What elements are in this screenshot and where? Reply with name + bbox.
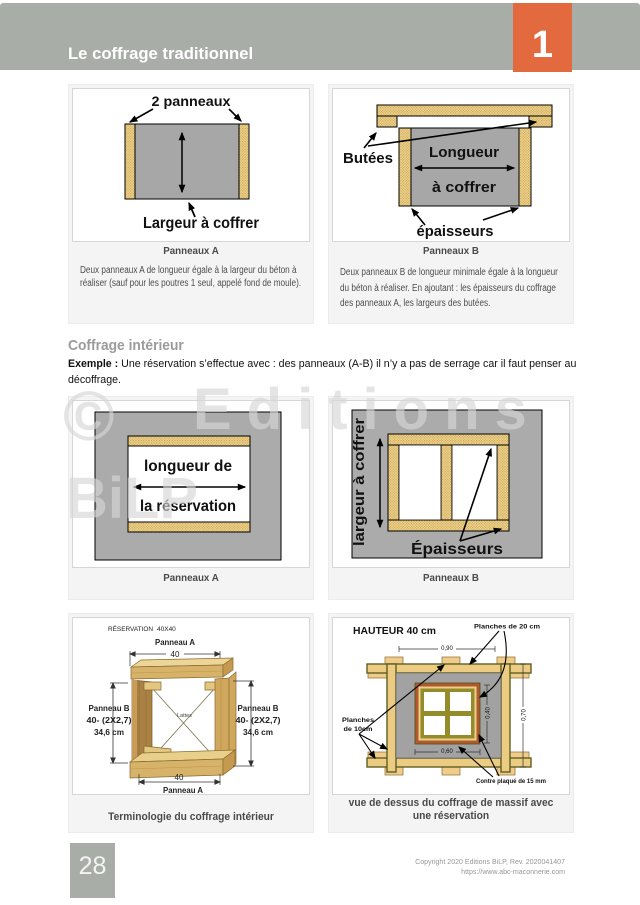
svg-text:40: 40: [171, 650, 180, 659]
svg-text:épaisseurs: épaisseurs: [417, 223, 494, 240]
svg-text:Planches: Planches: [342, 717, 374, 724]
svg-text:2 panneaux: 2 panneaux: [152, 93, 231, 109]
svg-text:Panneau A: Panneau A: [163, 786, 203, 794]
svg-text:Panneau B: Panneau B: [238, 704, 279, 713]
svg-text:0,70: 0,70: [522, 709, 528, 721]
svg-text:Butées: Butées: [343, 150, 393, 167]
svg-text:Panneau A: Panneau A: [155, 638, 195, 647]
svg-text:0,90: 0,90: [441, 646, 453, 652]
svg-text:40- (2X2,7): 40- (2X2,7): [87, 716, 132, 725]
svg-text:Contre plaqué de 15 mm: Contre plaqué de 15 mm: [476, 778, 546, 785]
svg-text:largeur à coffrer: largeur à coffrer: [351, 418, 368, 546]
svg-text:34,6 cm: 34,6 cm: [243, 728, 273, 737]
svg-text:0,40: 0,40: [486, 707, 492, 719]
svg-text:Lattes: Lattes: [177, 713, 192, 719]
svg-text:40X40: 40X40: [157, 626, 176, 633]
svg-text:HAUTEUR 40 cm: HAUTEUR 40 cm: [353, 625, 436, 637]
svg-text:40: 40: [175, 773, 184, 782]
svg-text:Épaisseurs: Épaisseurs: [411, 539, 503, 558]
svg-text:Planches de 20 cm: Planches de 20 cm: [474, 624, 540, 631]
svg-text:RÉSERVATION: RÉSERVATION: [108, 624, 153, 633]
svg-text:Panneau B: Panneau B: [89, 704, 130, 713]
svg-text:40- (2X2,7): 40- (2X2,7): [236, 716, 281, 725]
svg-text:0,60: 0,60: [441, 749, 453, 755]
svg-text:longueur de: longueur de: [144, 458, 232, 475]
svg-text:Longueur: Longueur: [429, 144, 499, 161]
svg-text:la réservation: la réservation: [140, 498, 236, 515]
svg-text:à coffrer: à coffrer: [432, 179, 496, 196]
svg-text:34,6 cm: 34,6 cm: [94, 728, 124, 737]
svg-text:Largeur à coffrer: Largeur à coffrer: [143, 215, 259, 232]
